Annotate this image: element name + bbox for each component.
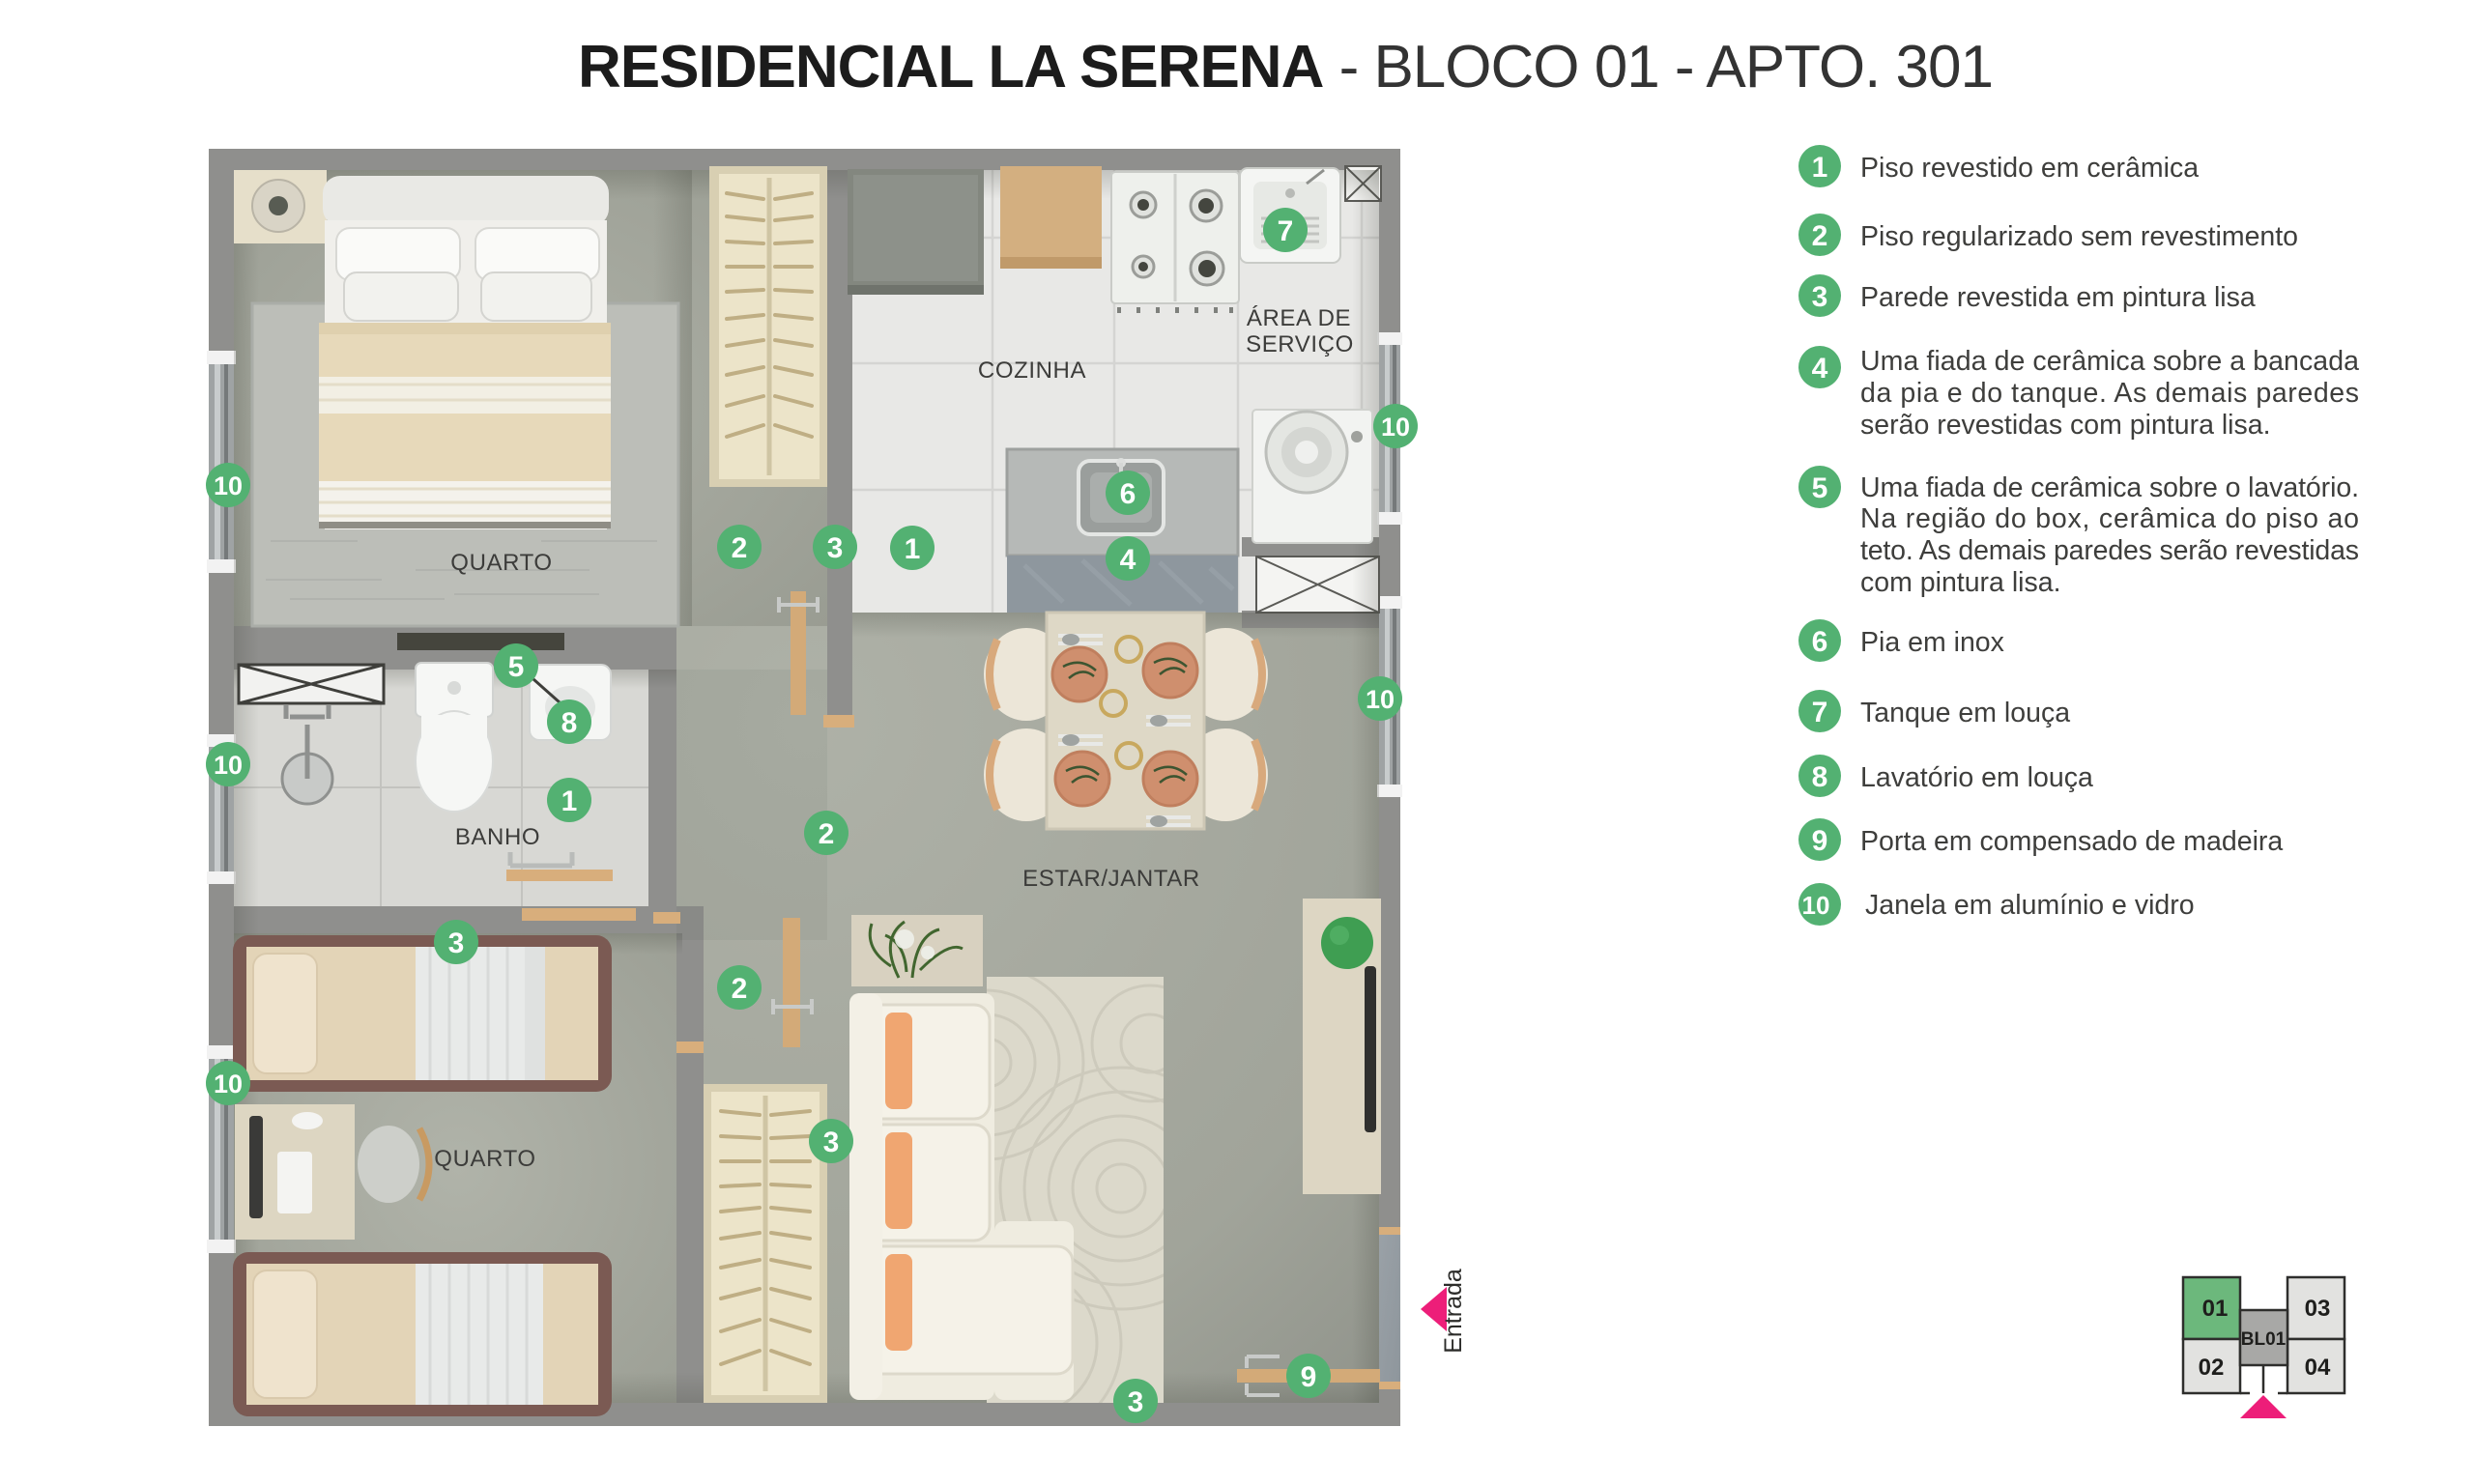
svg-text:01: 01 [2202,1296,2229,1322]
svg-text:4: 4 [1812,353,1828,385]
svg-text:10: 10 [214,471,243,500]
svg-text:2: 2 [732,973,748,1005]
svg-text:3: 3 [448,927,465,959]
svg-text:serão revestidas com pintura l: serão revestidas com pintura lisa. [1860,410,2271,441]
svg-text:3: 3 [1812,281,1828,313]
svg-text:Parede revestida em pintura li: Parede revestida em pintura lisa [1860,282,2256,313]
svg-text:9: 9 [1301,1361,1317,1393]
svg-text:3: 3 [827,532,844,564]
svg-text:5: 5 [1812,472,1828,504]
svg-text:6: 6 [1120,478,1136,510]
svg-text:7: 7 [1812,697,1828,728]
svg-text:9: 9 [1812,825,1828,857]
svg-text:ESTAR/JANTAR: ESTAR/JANTAR [1022,866,1200,892]
svg-text:Tanque em louça: Tanque em louça [1860,698,2070,728]
svg-text:Uma fiada de cerâmica sobre a: Uma fiada de cerâmica sobre a bancada [1860,346,2359,377]
svg-text:BL01: BL01 [2241,1329,2287,1350]
svg-text:02: 02 [2199,1355,2225,1381]
svg-text:10: 10 [1802,891,1830,920]
svg-text:BANHO: BANHO [455,824,540,850]
svg-text:10: 10 [1381,413,1410,442]
svg-text:RESIDENCIAL LA SERENA - BLOCO: RESIDENCIAL LA SERENA - BLOCO 01 - APTO.… [578,34,1993,100]
svg-text:8: 8 [1812,761,1828,793]
svg-text:da pia e do tanque. As demais: da pia e do tanque. As demais paredes [1860,378,2359,409]
svg-text:04: 04 [2305,1355,2331,1381]
svg-text:ÁREA DE: ÁREA DE [1247,305,1351,331]
svg-text:10: 10 [1366,685,1395,714]
svg-text:1: 1 [905,533,921,565]
svg-text:Porta em compensado de madeira: Porta em compensado de madeira [1860,826,2283,857]
svg-text:6: 6 [1812,626,1828,658]
svg-text:3: 3 [1128,1386,1144,1418]
svg-text:1: 1 [561,785,578,817]
svg-text:Na região do box, cerâmica do: Na região do box, cerâmica do piso ao [1860,503,2359,534]
svg-text:COZINHA: COZINHA [978,357,1086,384]
svg-text:4: 4 [1120,544,1136,576]
svg-text:3: 3 [823,1127,840,1158]
svg-text:Janela em alumínio e vidro: Janela em alumínio e vidro [1865,890,2195,921]
svg-text:10: 10 [214,751,243,780]
svg-text:10: 10 [214,1070,243,1099]
svg-text:QUARTO: QUARTO [434,1146,535,1172]
svg-text:5: 5 [508,651,525,683]
svg-text:03: 03 [2305,1296,2331,1322]
svg-text:SERVIÇO: SERVIÇO [1246,331,1354,357]
svg-text:Entrada: Entrada [1440,1269,1467,1354]
svg-text:7: 7 [1278,215,1294,247]
svg-text:1: 1 [1812,152,1828,184]
svg-text:Uma fiada de cerâmica sobre o: Uma fiada de cerâmica sobre o lavatório. [1860,472,2359,503]
svg-text:2: 2 [819,818,835,850]
svg-text:Piso regularizado sem revestim: Piso regularizado sem revestimento [1860,221,2298,252]
svg-text:com pintura lisa.: com pintura lisa. [1860,567,2061,598]
svg-text:2: 2 [1812,220,1828,252]
svg-text:teto. As demais paredes serão: teto. As demais paredes serão revestidas [1860,535,2359,566]
svg-text:QUARTO: QUARTO [450,550,552,576]
svg-text:Piso revestido em cerâmica: Piso revestido em cerâmica [1860,153,2199,184]
svg-text:Lavatório em louça: Lavatório em louça [1860,762,2093,793]
svg-text:2: 2 [732,532,748,564]
svg-text:8: 8 [561,707,578,739]
svg-text:Pia em inox: Pia em inox [1860,627,2004,658]
